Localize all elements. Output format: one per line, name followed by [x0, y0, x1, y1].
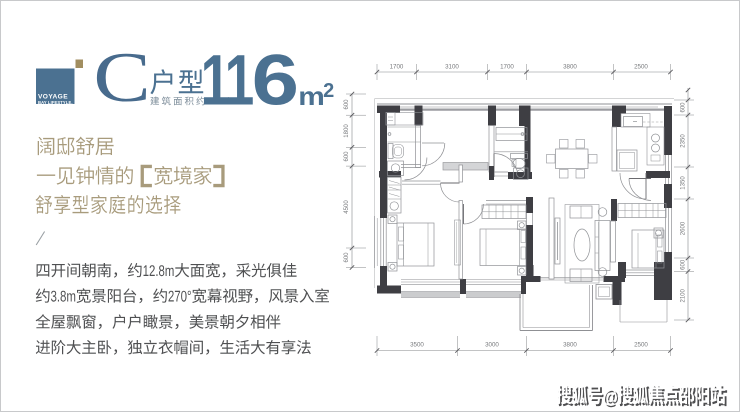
svg-text:BAY LIFESTYLE.: BAY LIFESTYLE. [38, 100, 73, 105]
svg-text:600: 600 [681, 102, 687, 113]
svg-text:1700: 1700 [390, 64, 404, 71]
svg-text:1700: 1700 [500, 64, 514, 71]
svg-text:2: 2 [323, 80, 334, 102]
svg-text:600: 600 [344, 252, 350, 263]
svg-text:C: C [93, 39, 150, 117]
svg-text:2500: 2500 [634, 64, 648, 71]
svg-text:1: 1 [225, 41, 255, 120]
svg-text:2500: 2500 [634, 342, 648, 349]
svg-text:3800: 3800 [563, 342, 577, 349]
svg-text:600: 600 [344, 151, 350, 162]
svg-text:2350: 2350 [681, 134, 687, 148]
svg-text:m: m [298, 82, 325, 111]
svg-text:2600: 2600 [681, 221, 687, 235]
svg-text:600: 600 [681, 259, 687, 270]
svg-text:1350: 1350 [681, 176, 687, 190]
svg-text:6: 6 [252, 40, 299, 120]
svg-text:2100: 2100 [681, 288, 687, 302]
svg-text:1800: 1800 [344, 124, 350, 138]
svg-text:3000: 3000 [485, 342, 499, 349]
svg-text:3800: 3800 [563, 64, 577, 71]
svg-text:4500: 4500 [344, 200, 350, 214]
svg-text:3100: 3100 [445, 64, 459, 71]
svg-text:3500: 3500 [410, 342, 424, 349]
svg-text:600: 600 [344, 99, 350, 110]
